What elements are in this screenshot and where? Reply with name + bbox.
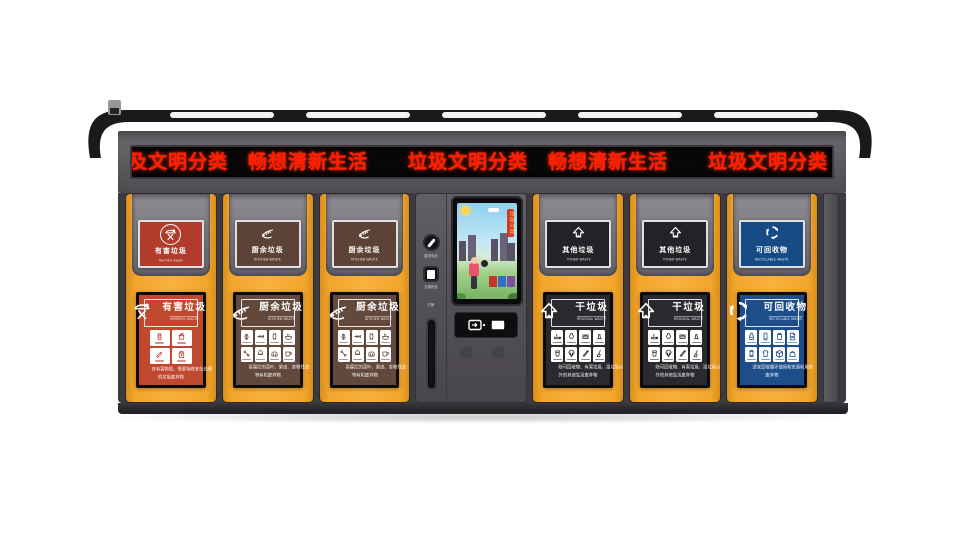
cigarette-butt-icon (551, 330, 563, 345)
other-waste-sign: 其他垃圾OTHER WASTE (545, 220, 611, 268)
poster-caption: 含有害物质，需要特殊安全处理 的垃圾废弃物 (144, 367, 198, 383)
poster-item-grid (338, 330, 392, 362)
other-waste-poster: 干垃圾 RESIDUAL WASTE 除可回收物、有害垃圾、湿垃圾以 外的其他 (640, 292, 710, 388)
touch-screen[interactable]: 垃圾分类 (451, 196, 523, 306)
door-other-waste[interactable]: 其他垃圾OTHER WASTE 干垃圾 RESIDUAL WASTE (629, 193, 721, 403)
card-reader-icon (468, 319, 486, 331)
glass-jar-icon (773, 330, 785, 345)
tube-slot-label: 灯管 (428, 302, 435, 307)
apple-core-icon (269, 330, 281, 345)
lamp-tube-icon (150, 348, 170, 364)
poster-subtitle: RECYCLABLE WASTE (769, 316, 803, 321)
harmful-waste-icon (131, 300, 153, 326)
shell-icon (565, 347, 577, 362)
paint-bucket-icon (172, 330, 192, 346)
roof-light-strip (306, 112, 410, 118)
purple-bin-shape (507, 276, 515, 287)
kitchen-waste-icon (260, 225, 275, 244)
poster-header: 干垃圾 RESIDUAL WASTE (648, 299, 702, 327)
door-other-waste[interactable]: 其他垃圾OTHER WASTE 干垃圾 RESIDUAL WASTE (532, 193, 624, 403)
red-bin-shape (489, 276, 497, 287)
door-harmful-waste[interactable]: 有害垃圾Harmful waste 有害垃圾 HARMFUL WASTE 含有害… (125, 193, 217, 403)
poster-item-grid (144, 330, 198, 364)
bone-icon (241, 347, 253, 362)
eggshell-icon (255, 347, 267, 362)
vegetable-leaf-icon (241, 330, 253, 345)
poster-header: 可回收物 RECYCLABLE WASTE (745, 299, 799, 327)
speaker-hole (460, 346, 473, 359)
led-ticker-text: 及文明分类 畅想清新生活 垃圾文明分类 畅想清新生活 垃圾文明分类 畅想清新生 (130, 147, 834, 177)
bread-icon (366, 347, 378, 362)
battery-port-label: 废旧电池 (425, 253, 438, 258)
pen-icon (579, 347, 591, 362)
small-deposit-strip: 废旧电池 过期药品 灯管 (416, 194, 447, 402)
sign-title: 可回收物 (756, 245, 788, 255)
roof-light-strip (442, 112, 546, 118)
poster-subtitle: RESIDUAL WASTE (577, 316, 606, 321)
poster-item-grid (551, 330, 605, 362)
leftovers-icon (283, 330, 295, 345)
poster-title: 厨余垃圾 (259, 303, 303, 313)
deposit-hopper[interactable]: 厨余垃圾KITCHEN WASTE (326, 194, 404, 276)
cabinet-body: 有害垃圾Harmful waste 有害垃圾 HARMFUL WASTE 含有害… (118, 193, 846, 403)
deposit-hopper[interactable]: 其他垃圾OTHER WASTE (636, 194, 714, 276)
ceramic-icon (662, 330, 674, 345)
other-waste-icon (571, 225, 586, 244)
kitchen-waste-icon (357, 225, 372, 244)
kitchen-waste-poster: 厨余垃圾 KITCHEN WASTE 易腐烂的菜叶、果皮、食物残渣 等有机废弃 (330, 292, 400, 388)
dust-icon (593, 330, 605, 345)
kitchen-waste-poster: 厨余垃圾 KITCHEN WASTE 易腐烂的菜叶、果皮、食物残渣 等有机废弃 (233, 292, 303, 388)
poster-title: 有害垃圾 (162, 303, 206, 313)
recyclable-waste-poster: 可回收物 RECYCLABLE WASTE 适宜回收循环使用和资源利用的 废弃 (737, 292, 807, 388)
sign-title: 有害垃圾 (155, 246, 187, 256)
smart-waste-station-photo: 及文明分类 畅想清新生活 垃圾文明分类 畅想清新生活 垃圾文明分类 畅想清新生 … (0, 0, 957, 550)
card-icon (491, 320, 505, 330)
fish-bone-icon (255, 330, 267, 345)
tea-residue-icon (283, 347, 295, 362)
speaker-hole (492, 346, 505, 359)
poster-caption: 适宜回收循环使用和资源利用的 废弃物 (745, 365, 799, 381)
dust-icon (690, 330, 702, 345)
card-reader[interactable] (454, 312, 518, 338)
camera-icon (108, 100, 121, 115)
paper-icon (787, 330, 799, 345)
poster-item-grid (745, 330, 799, 362)
other-waste-poster: 干垃圾 RESIDUAL WASTE 除可回收物、有害垃圾、湿垃圾以 外的其他 (543, 292, 613, 388)
sign-subtitle: KITCHEN WASTE (254, 258, 281, 262)
sign-subtitle: OTHER WASTE (663, 258, 687, 262)
deposit-hopper[interactable]: 可回收物RECYCLABLE WASTE (733, 194, 811, 276)
screen-banner: 垃圾分类 (507, 209, 514, 237)
vegetable-leaf-icon (338, 330, 350, 345)
handbag-icon (787, 347, 799, 362)
tissue-paper-icon (676, 330, 688, 345)
poster-item-grid (648, 330, 702, 362)
poster-caption: 除可回收物、有害垃圾、湿垃圾以 外的其他生活废弃物 (648, 365, 702, 381)
sign-title: 其他垃圾 (562, 245, 594, 255)
carton-box-icon (773, 347, 785, 362)
fish-bone-icon (352, 330, 364, 345)
clothes-icon (759, 347, 771, 362)
other-waste-sign: 其他垃圾OTHER WASTE (642, 220, 708, 268)
screen-illustration: 垃圾分类 (457, 203, 517, 299)
sign-title: 厨余垃圾 (349, 245, 381, 255)
other-waste-icon (538, 300, 560, 326)
ceramic-icon (565, 330, 577, 345)
harmful-waste-sign: 有害垃圾Harmful waste (138, 220, 204, 268)
harmful-waste-icon (160, 224, 181, 245)
kitchen-waste-sign: 厨余垃圾KITCHEN WASTE (332, 220, 398, 268)
harmful-waste-poster: 有害垃圾 HARMFUL WASTE 含有害物质，需要特殊安全处理 的垃圾废弃物 (136, 292, 206, 388)
lamp-tube-slot[interactable] (426, 318, 437, 390)
sign-subtitle: Harmful waste (159, 259, 183, 263)
sign-subtitle: OTHER WASTE (566, 258, 590, 262)
poster-item-grid (241, 330, 295, 362)
roof-light-strip (714, 112, 818, 118)
tea-residue-icon (380, 347, 392, 362)
door-kitchen-waste[interactable]: 厨余垃圾KITCHEN WASTE 厨余垃圾 KITCHEN WASTE (319, 193, 411, 403)
poster-caption: 易腐烂的菜叶、果皮、食物残渣 等有机废弃物 (338, 365, 392, 381)
sign-subtitle: RECYCLABLE WASTE (755, 258, 789, 262)
poster-title: 干垃圾 (575, 303, 608, 313)
person-figure (469, 263, 479, 277)
kitchen-waste-sign: 厨余垃圾KITCHEN WASTE (235, 220, 301, 268)
shell-icon (662, 347, 674, 362)
center-console: 废旧电池 过期药品 灯管 垃圾分类 (415, 193, 527, 403)
roof-light-strip (170, 112, 274, 118)
poster-header: 干垃圾 RESIDUAL WASTE (551, 299, 605, 327)
battery-slot-icon[interactable] (423, 234, 440, 251)
leftovers-icon (380, 330, 392, 345)
waste-battery-icon (150, 330, 170, 346)
recyclable-waste-sign: 可回收物RECYCLABLE WASTE (739, 220, 805, 268)
header-fascia: 及文明分类 畅想清新生活 垃圾文明分类 畅想清新生活 垃圾文明分类 畅想清新生 (118, 131, 846, 193)
roof-light-strip (578, 112, 682, 118)
other-waste-icon (635, 300, 657, 326)
broom-icon (690, 347, 702, 362)
deposit-hopper[interactable]: 厨余垃圾KITCHEN WASTE (229, 194, 307, 276)
poster-subtitle: KITCHEN WASTE (268, 316, 295, 321)
disposable-cup-icon (551, 347, 563, 362)
mobile-phone-icon (759, 330, 771, 345)
sign-title: 厨余垃圾 (252, 245, 284, 255)
door-recyclable-waste[interactable]: 可回收物RECYCLABLE WASTE 可回收物 RECYCLABLE WAS… (726, 193, 818, 403)
poster-subtitle: RESIDUAL WASTE (674, 316, 703, 321)
plastic-bottle-icon (745, 330, 757, 345)
sun-icon (461, 206, 470, 215)
poster-subtitle: HARMFUL WASTE (170, 316, 199, 321)
apple-core-icon (366, 330, 378, 345)
broom-icon (593, 347, 605, 362)
sign-subtitle: KITCHEN WASTE (351, 258, 378, 262)
bread-icon (269, 347, 281, 362)
medicine-slot-icon[interactable] (423, 266, 439, 282)
other-waste-icon (668, 225, 683, 244)
poster-caption: 除可回收物、有害垃圾、湿垃圾以 外的其他生活废弃物 (551, 365, 605, 381)
sign-title: 其他垃圾 (659, 245, 691, 255)
ground-shadow (96, 410, 862, 424)
recyclable-icon (765, 225, 780, 244)
pen-icon (676, 347, 688, 362)
cabinet-end-pillar (823, 193, 839, 403)
cigarette-butt-icon (648, 330, 660, 345)
poster-title: 干垃圾 (672, 303, 705, 313)
poster-header: 厨余垃圾 KITCHEN WASTE (338, 299, 392, 327)
door-kitchen-waste[interactable]: 厨余垃圾KITCHEN WASTE 厨余垃圾 KITCHEN WASTE (222, 193, 314, 403)
deposit-hopper[interactable]: 有害垃圾Harmful waste (132, 194, 210, 276)
blue-bin-shape (498, 276, 506, 287)
kitchen-waste-icon (327, 300, 349, 326)
led-ticker: 及文明分类 畅想清新生活 垃圾文明分类 畅想清新生活 垃圾文明分类 畅想清新生 (130, 145, 834, 179)
medicine-port-label: 过期药品 (425, 284, 438, 289)
poster-subtitle: KITCHEN WASTE (365, 316, 392, 321)
trash-bag-shape (481, 260, 488, 267)
bone-icon (338, 347, 350, 362)
poster-header: 有害垃圾 HARMFUL WASTE (144, 299, 198, 327)
poster-caption: 易腐烂的菜叶、果皮、食物残渣 等有机废弃物 (241, 365, 295, 381)
eggshell-icon (352, 347, 364, 362)
tissue-paper-icon (579, 330, 591, 345)
poster-header: 厨余垃圾 KITCHEN WASTE (241, 299, 295, 327)
poster-title: 可回收物 (764, 303, 808, 313)
recyclable-icon (728, 300, 750, 326)
doors-row: 有害垃圾Harmful waste 有害垃圾 HARMFUL WASTE 含有害… (118, 193, 846, 403)
tin-can-icon (745, 347, 757, 362)
poster-title: 厨余垃圾 (356, 303, 400, 313)
disposable-cup-icon (648, 347, 660, 362)
deposit-hopper[interactable]: 其他垃圾OTHER WASTE (539, 194, 617, 276)
kitchen-waste-icon (230, 300, 252, 326)
expired-medicine-icon (172, 348, 192, 364)
